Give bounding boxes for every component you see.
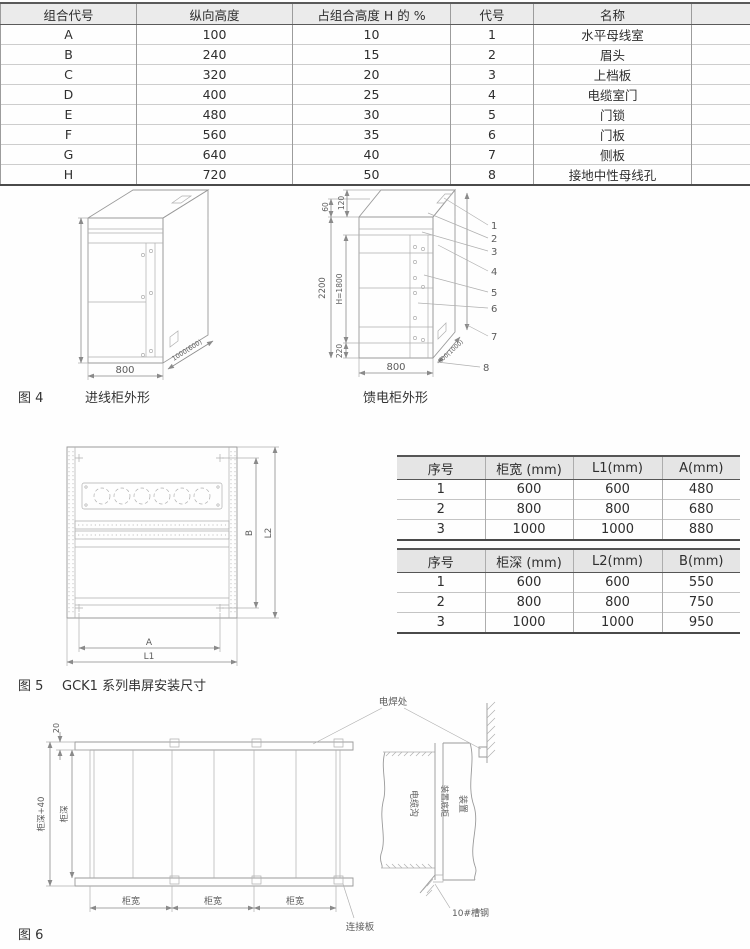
cell: 800 [485,500,573,520]
cable-trench-label: 电缆沟 [408,790,420,817]
dim-bay-1: 柜宽 [122,895,140,907]
table-header-row: 序号 柜宽 (mm) L1(mm) A(mm) [397,456,740,480]
dim-bay-3: 柜宽 [286,895,304,907]
table-row: 310001000950 [397,613,740,634]
cabinet-body [359,190,455,358]
channel-steel-label: 10#槽钢 [452,907,489,919]
cell: 550 [662,573,740,593]
table-row: D400254电缆室门 [1,85,750,105]
cell: 680 [662,500,740,520]
col-header-vertical-height: 纵向高度 [137,3,293,25]
wall-and-trench [380,702,495,896]
fig4-feeder-caption: 馈电柜外形 [363,387,428,406]
fig6-number: 图 6 [18,924,43,943]
annotations: 电焊处 电缆沟 装置底柜 装置 连接板 10#槽钢 [313,696,489,933]
cell: 880 [662,520,740,541]
cell-empty [692,25,750,45]
cell-empty [692,165,750,186]
col-header-code: 代号 [451,3,534,25]
dim-2200: 2200 [318,277,328,299]
dim-60: 60 [321,202,330,212]
dim-b: B [245,530,255,536]
cell: 320 [137,65,293,85]
width-dimension-table: 序号 柜宽 (mm) L1(mm) A(mm) 1600600480 28008… [397,455,740,541]
cell: 25 [293,85,451,105]
fig6-installation-plan-drawing: 柜深+40 柜深 20 柜宽 柜宽 柜宽 电焊处 电缆沟 装置底柜 装置 连接板… [30,690,550,940]
callout-1: 1 [491,221,497,232]
table-row: 2800800680 [397,500,740,520]
device-base-label: 装置底柜 [440,785,450,817]
dim-depth: 柜深 [59,805,70,823]
cell: 5 [451,105,534,125]
panel-body [67,447,237,618]
cell: 800 [573,500,662,520]
callout-4: 4 [491,267,497,278]
cell: 100 [137,25,293,45]
dim-width-label: 800 [115,365,134,376]
cell: 30 [293,105,451,125]
col-header-empty [692,3,750,25]
table-row: C320203上档板 [1,65,750,85]
cell: A [1,25,137,45]
document-page: 组合代号 纵向高度 占组合高度 H 的 % 代号 名称 A100101水平母线室… [0,0,750,949]
col-header-cabinet-width: 柜宽 (mm) [485,456,573,480]
cell: 上档板 [534,65,692,85]
dim-depth: 800(1000) [437,339,465,365]
cell: 10 [293,25,451,45]
table-row: 2800800750 [397,593,740,613]
cell: 560 [137,125,293,145]
cell-empty [692,45,750,65]
cell: 水平母线室 [534,25,692,45]
cell: 800 [573,593,662,613]
fig4-incoming-cabinet-drawing: 800 1000(600) [60,185,320,400]
cell: 3 [397,613,485,634]
table-row: 310001000880 [397,520,740,541]
cell: 3 [397,520,485,541]
dim-l2: L2 [264,528,274,539]
callout-6: 6 [491,304,497,315]
busbar-rail [75,521,229,539]
corner-screws [75,454,224,612]
cell: 600 [485,573,573,593]
cell: 20 [293,65,451,85]
callout-5: 5 [491,288,497,299]
cell: 50 [293,165,451,186]
callout-3: 3 [491,247,497,258]
col-header-b: B(mm) [662,549,740,573]
cell: 7 [451,145,534,165]
dim-20: 20 [52,723,61,733]
cell: E [1,105,137,125]
cell: 15 [293,45,451,65]
cell: 720 [137,165,293,186]
cell-empty [692,145,750,165]
dimensions: 柜深+40 柜深 20 柜宽 柜宽 柜宽 [36,723,336,912]
dim-a: A [146,638,153,648]
cell: 电缆室门 [534,85,692,105]
cell: 950 [662,613,740,634]
cell: 接地中性母线孔 [534,165,692,186]
dim-220: 220 [335,344,344,359]
cabinet-body [88,190,208,363]
cell: 6 [451,125,534,145]
cell: 800 [485,593,573,613]
dim-bay-2: 柜宽 [204,895,222,907]
cell-empty [692,65,750,85]
cell: 750 [662,593,740,613]
callout-8: 8 [483,363,489,374]
cell: 3 [451,65,534,85]
dimensions: 60 120 2200 H=1800 220 800 800(1000) [318,190,467,377]
col-header-l1: L1(mm) [573,456,662,480]
col-header-index: 序号 [397,549,485,573]
col-header-combo-code: 组合代号 [1,3,137,25]
table-header-row: 序号 柜深 (mm) L2(mm) B(mm) [397,549,740,573]
table-row: H720508接地中性母线孔 [1,165,750,186]
cell: 2 [451,45,534,65]
cell-empty [692,125,750,145]
vent-panel [82,483,222,509]
connector-plate-label: 连接板 [346,921,375,933]
col-header-cabinet-depth: 柜深 (mm) [485,549,573,573]
door-hinge-holes [141,249,152,356]
dim-depth-plus-40: 柜深+40 [36,797,47,832]
cell: 640 [137,145,293,165]
cell: 1 [397,480,485,500]
cell: 2 [397,593,485,613]
col-header-index: 序号 [397,456,485,480]
cell: 1000 [573,613,662,634]
table-row: 1600600480 [397,480,740,500]
dimensions: 800 1000(600) [78,218,213,380]
table-row: 1600600550 [397,573,740,593]
cell: 门锁 [534,105,692,125]
dim-h1800: H=1800 [335,273,344,304]
dim-width: 800 [386,362,405,373]
cell: 1000 [573,520,662,541]
fig4-incoming-caption: 进线柜外形 [85,387,150,406]
col-header-a: A(mm) [662,456,740,480]
height-combination-table: 组合代号 纵向高度 占组合高度 H 的 % 代号 名称 A100101水平母线室… [0,2,750,186]
col-header-name: 名称 [534,3,692,25]
cell: 侧板 [534,145,692,165]
cell: 35 [293,125,451,145]
callout-2: 2 [491,234,497,245]
callout-7: 7 [491,332,497,343]
cell: 40 [293,145,451,165]
cell: 1000 [485,613,573,634]
cell: 480 [137,105,293,125]
cell: 600 [573,573,662,593]
cell: 门板 [534,125,692,145]
cell: 600 [573,480,662,500]
cell: 8 [451,165,534,186]
cell: D [1,85,137,105]
cell-empty [692,105,750,125]
cell: B [1,45,137,65]
cell: 1 [397,573,485,593]
cell: 480 [662,480,740,500]
cell: 1000 [485,520,573,541]
cell: H [1,165,137,186]
dimensions: B L2 A L1 [67,447,279,666]
col-header-l2: L2(mm) [573,549,662,573]
cell: G [1,145,137,165]
fig4-feeder-cabinet-drawing: 60 120 2200 H=1800 220 800 800(1000) 1 2… [310,185,550,400]
weld-spot-label: 电焊处 [379,696,408,708]
cell: 600 [485,480,573,500]
dim-l1: L1 [144,652,155,662]
cell: C [1,65,137,85]
fig5-panel-drawing: B L2 A L1 [55,425,345,675]
cell: 400 [137,85,293,105]
cell: 4 [451,85,534,105]
table-header-row: 组合代号 纵向高度 占组合高度 H 的 % 代号 名称 [1,3,750,25]
cell: F [1,125,137,145]
dim-120: 120 [337,196,346,211]
cell: 1 [451,25,534,45]
table-row: F560356门板 [1,125,750,145]
col-header-percent: 占组合高度 H 的 % [293,3,451,25]
cell-empty [692,85,750,105]
table-row: A100101水平母线室 [1,25,750,45]
table-row: B240152眉头 [1,45,750,65]
cabinet-row-plan [75,739,353,886]
depth-dimension-table: 序号 柜深 (mm) L2(mm) B(mm) 1600600550 28008… [397,548,740,634]
cell: 2 [397,500,485,520]
table-row: E480305门锁 [1,105,750,125]
table-row: G640407侧板 [1,145,750,165]
device-label: 装置 [457,795,469,813]
fig4-number: 图 4 [18,387,43,406]
cell: 眉头 [534,45,692,65]
cell: 240 [137,45,293,65]
